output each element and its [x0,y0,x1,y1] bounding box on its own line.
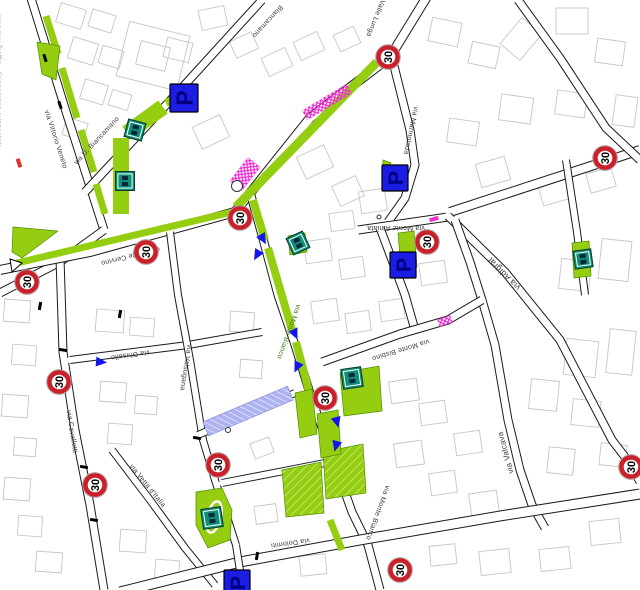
speed-limit-30-sign: 30 [312,385,338,411]
building-parcel [134,395,157,414]
parking-sign-letter: P [171,90,197,105]
red_solid-zone [16,158,23,168]
building-parcel [547,447,576,476]
building-parcel [299,554,327,577]
sign-value: 30 [395,564,407,577]
building-parcel [311,298,340,323]
building-parcel [345,310,372,333]
speed-limit-30-sign: 30 [227,205,253,231]
speed-limit-30-sign: 30 [375,44,401,70]
green-zone-sign-glyph [122,176,128,180]
green-zone-sign-glyph [349,379,355,384]
stop-bar-marking [38,302,42,310]
building-parcel [119,529,146,553]
building-parcel [192,115,229,149]
building-parcel [329,210,355,231]
speed-limit-30-sign: 30 [205,452,231,478]
sign-value: 30 [54,376,66,389]
roundabout-circle [226,428,231,433]
sign-value: 30 [213,459,225,472]
building-parcel [129,317,154,337]
sign-value: 30 [320,392,332,405]
building-parcel [594,38,625,66]
building-parcel [612,95,638,128]
road-via-vittorio-veneto [30,0,104,230]
green-zone-sign [116,172,135,191]
building-parcel [35,551,62,573]
building-parcel [254,504,278,525]
building-parcel [229,311,254,333]
building-parcel [13,437,36,456]
building-parcel [239,359,262,378]
building-parcel [446,118,479,146]
green-zone-sign-glyph [208,513,214,518]
roundabout-circle [377,215,381,219]
building-parcel [389,378,420,404]
parking-sign-letter: P [392,258,416,272]
parking-sign: P [390,252,416,278]
stop-bar-marking [118,310,122,318]
building-parcel [108,89,132,110]
building-parcel [3,299,30,323]
green-zone-sign-glyph [348,373,354,378]
map-canvas: via Vittorio Venetovia U. BiancamanoBian… [0,0,640,590]
city-map: via Vittorio Venetovia U. BiancamanoBian… [0,0,640,590]
road-via-adigrat [448,216,640,482]
building-parcel [379,298,406,321]
building-parcel [56,3,87,30]
building-parcel [468,41,500,68]
building-parcel [393,440,424,468]
green-zone-sign [573,249,593,269]
green-zone-sign-glyph [580,260,586,265]
parking-sign-letter: P [384,171,408,185]
building-parcel [454,430,483,455]
building-parcel [198,6,228,31]
parking-sign-letter: P [226,576,250,590]
building-parcel [3,477,30,501]
building-parcel [333,26,361,52]
park-area [37,42,60,80]
street-label: via Adigrat [485,255,522,292]
speed-limit-30-sign: 30 [82,472,108,498]
building-parcel [11,344,36,366]
speed-limit-30-sign: 30 [414,229,440,255]
building-parcel [606,329,636,375]
parking-sign: P [382,165,408,191]
speed-limit-30-sign: 30 [46,369,72,395]
green-zone-sign-plate [124,119,146,141]
park-area-hatched [282,462,324,517]
parking-sign: P [224,570,250,590]
building-parcel [589,518,621,545]
speed-limit-30-sign: 30 [592,145,618,171]
building-parcel [107,423,132,445]
building-parcel [261,47,293,76]
building-parcel [80,79,109,105]
building-parcel [99,381,126,403]
building-parcel [250,437,274,459]
green-strip [268,248,292,330]
roundabout-circle [232,181,243,192]
sign-value: 30 [626,461,638,474]
building-parcel [529,379,560,412]
green-zone-sign-glyph [209,519,215,524]
sign-value: 30 [141,246,153,259]
street-label: via Monte Amiata [367,224,425,231]
sign-value: 30 [235,212,247,225]
green-zone-sign [201,507,224,530]
sign-value: 30 [600,152,612,165]
speed-limit-30-sign: 30 [14,269,40,295]
road-via-cavallotti [60,258,104,590]
building-parcel [17,515,42,537]
building-parcel [296,145,333,179]
green-zone-sign-glyph [579,254,585,259]
parking-sign: P [170,84,198,112]
building-parcel [429,470,458,495]
sign-value: 30 [383,51,395,64]
street-label: via Valle Lunga [365,0,391,38]
building-parcel [598,239,632,282]
building-parcel [479,548,511,575]
building-parcel [428,17,462,47]
building-parcel [539,546,571,571]
road-via-ghisallo-est [188,332,262,345]
green-zone-sign-glyph [122,182,128,186]
sign-value: 30 [90,479,102,492]
building-parcel [1,394,28,418]
speed-limit-30-sign: 30 [133,239,159,265]
speed-limit-30-sign: 30 [387,557,413,583]
building-parcel [332,176,365,207]
building-parcel [498,94,533,124]
building-parcel [429,544,457,567]
building-parcel [419,400,448,425]
building-parcel [556,8,588,34]
building-parcel [475,156,510,187]
building-parcel [136,41,171,72]
green-strip [236,62,377,207]
building-parcel [67,37,98,66]
building-parcel [98,45,124,69]
building-parcel [419,260,448,285]
building-parcel [116,21,190,90]
sign-value: 30 [22,276,34,289]
lavender-zone [203,386,294,436]
green-zone-sign [341,367,364,390]
green-interventions-layer [12,16,591,550]
building-parcel [88,9,116,33]
building-parcel [339,256,366,279]
sign-value: 30 [422,236,434,249]
building-parcel [293,31,325,60]
street-labels-layer: via Vittorio Venetovia U. BiancamanoBian… [43,0,523,549]
green-zone-sign [124,119,146,141]
